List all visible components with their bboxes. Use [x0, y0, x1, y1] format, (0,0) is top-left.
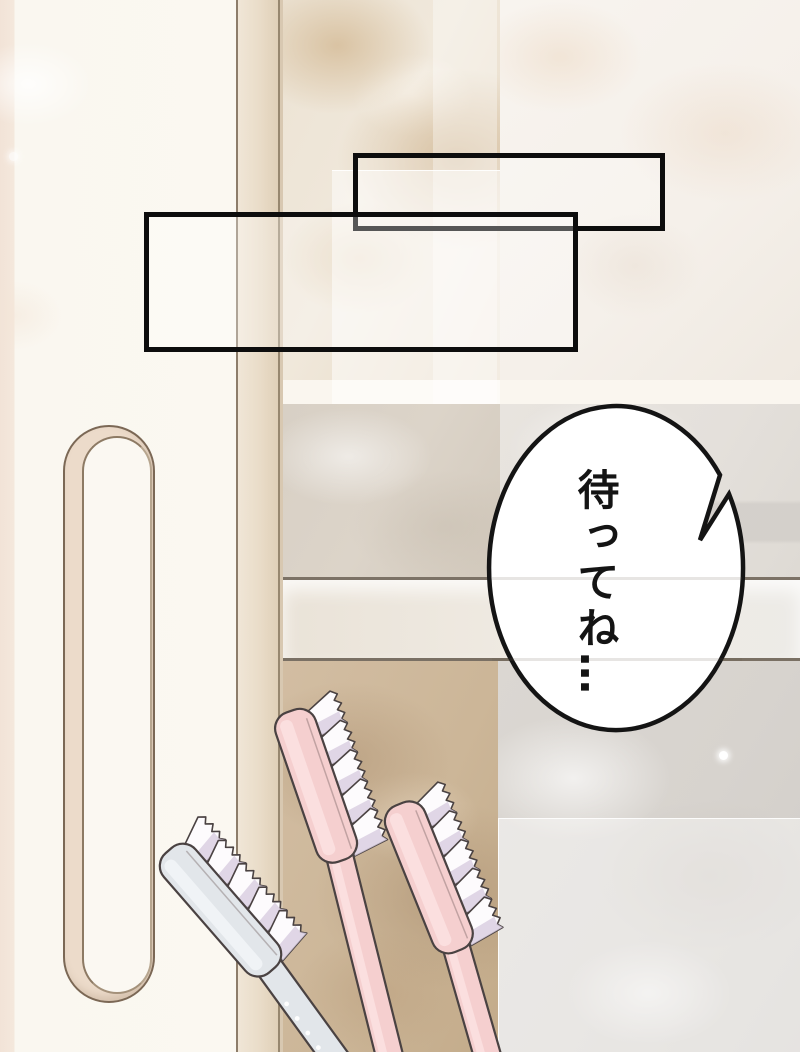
toothbrushes [0, 0, 800, 1052]
manga-page: 待ってね… [0, 0, 800, 1052]
toothbrush-pink-right [352, 779, 626, 1052]
